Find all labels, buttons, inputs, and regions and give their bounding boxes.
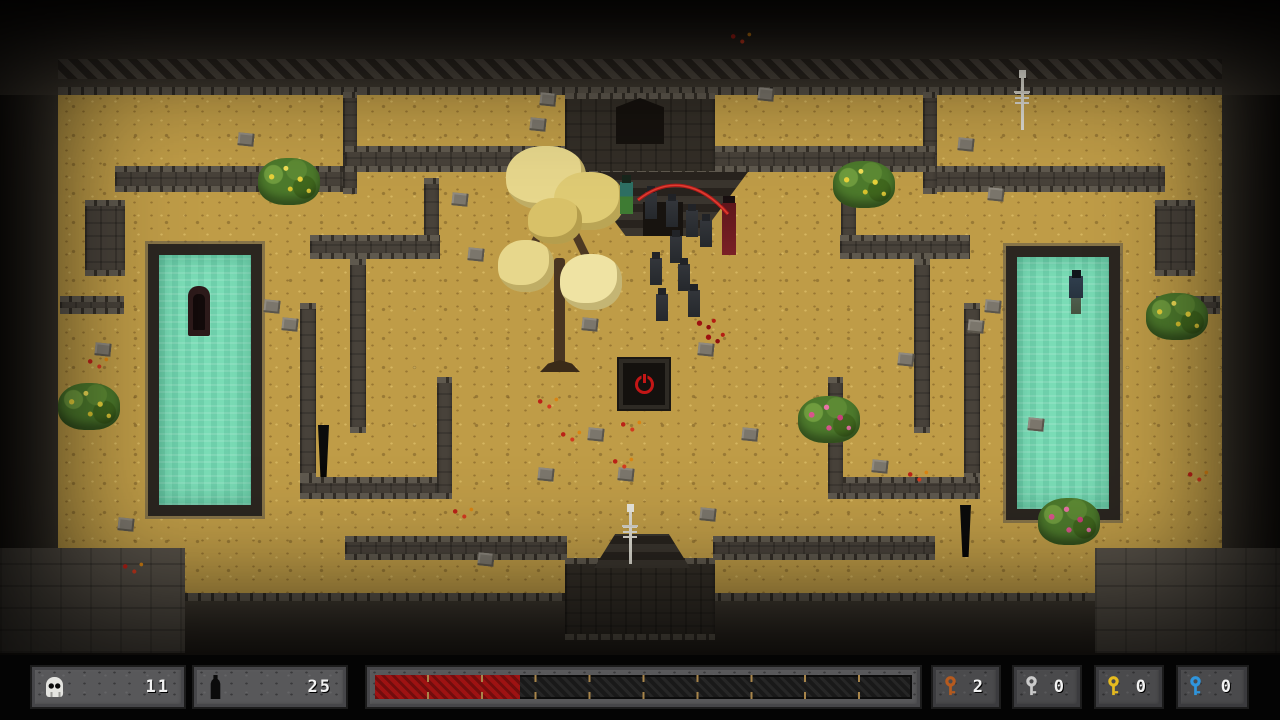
copper-key-count: 2 — [973, 677, 985, 697]
bush — [1038, 498, 1100, 545]
wall-segment — [300, 477, 446, 499]
stone-debris — [699, 507, 716, 522]
scattered-flowers — [85, 355, 111, 371]
bush — [1146, 293, 1208, 340]
key-counter-gold: 0 — [1094, 665, 1164, 709]
scattered-flowers — [558, 428, 584, 444]
stone-debris — [581, 317, 598, 332]
game-viewport[interactable] — [0, 0, 1280, 655]
wall-segment — [343, 92, 357, 194]
zombie — [700, 220, 712, 247]
stone-debris — [529, 117, 546, 132]
wall-segment — [300, 303, 316, 479]
wall-segment — [933, 166, 1165, 192]
outer-wall-right — [1222, 60, 1280, 620]
key-counter-copper: 2 — [931, 665, 1001, 709]
scattered-flowers — [728, 30, 754, 46]
copper-key-icon — [943, 676, 958, 698]
zombie — [688, 290, 700, 317]
scattered-flowers — [610, 455, 636, 471]
stone-debris — [467, 247, 484, 262]
stone-debris — [897, 352, 914, 367]
zombie — [650, 258, 662, 285]
bush — [798, 396, 860, 443]
stone-debris — [967, 319, 984, 334]
wall-segment — [1155, 200, 1195, 276]
stone-debris — [237, 132, 254, 147]
scattered-flowers — [618, 418, 644, 434]
bottle-icon — [208, 675, 223, 699]
stone-debris — [537, 467, 554, 482]
wall-segment — [923, 92, 937, 194]
stone-debris — [871, 459, 888, 474]
zombie — [678, 264, 690, 291]
bush — [58, 383, 120, 430]
stone-debris — [117, 517, 134, 532]
stone-debris — [1027, 417, 1044, 432]
key-counter-silver: 0 — [1012, 665, 1082, 709]
silver-key-count: 0 — [1054, 677, 1066, 697]
bush — [833, 161, 895, 208]
game-screen: 11 25 2 0 — [0, 0, 1280, 720]
green-hero — [620, 182, 633, 214]
skeleton — [1014, 78, 1030, 130]
stone-debris — [539, 92, 556, 107]
blue-key-icon — [1188, 676, 1203, 698]
health-segment-ticks — [375, 675, 912, 682]
stone-debris — [757, 87, 774, 102]
wall-segment — [85, 200, 125, 276]
water-pool — [1006, 246, 1120, 520]
corner-stonework-left — [0, 548, 185, 653]
stone-debris — [281, 317, 298, 332]
stone-debris — [741, 427, 758, 442]
skeleton — [622, 512, 638, 564]
outer-wall-left — [0, 60, 58, 620]
stone-debris — [451, 192, 468, 207]
hud-bar: 11 25 2 0 — [0, 655, 1280, 720]
wall-segment — [437, 377, 452, 499]
wall-segment — [713, 146, 935, 172]
scattered-flowers — [1185, 468, 1211, 484]
gold-key-icon — [1106, 676, 1121, 698]
cultist — [722, 203, 736, 255]
blood — [702, 330, 728, 346]
wall-segment — [310, 235, 440, 259]
zombie — [686, 210, 698, 237]
health-segment-ticks — [375, 692, 912, 699]
zombie — [666, 200, 678, 227]
wall-segment — [713, 536, 935, 560]
potion-count: 25 — [308, 677, 332, 697]
stone-debris — [477, 552, 494, 567]
stone-debris — [984, 299, 1001, 314]
stone-debris — [587, 427, 604, 442]
stone-debris — [263, 299, 280, 314]
power-icon — [635, 375, 654, 394]
north-gate-icon — [616, 98, 664, 144]
potion-counter: 25 — [192, 665, 348, 709]
gold-key-count: 0 — [1136, 677, 1148, 697]
drowned — [1066, 270, 1086, 316]
skull-counter: 11 — [30, 665, 186, 709]
scattered-flowers — [450, 505, 476, 521]
wall-segment — [565, 558, 715, 640]
scattered-flowers — [905, 468, 931, 484]
key-counter-blue: 0 — [1176, 665, 1249, 709]
zombie — [656, 294, 668, 321]
silver-key-icon — [1024, 676, 1039, 698]
scattered-flowers — [535, 395, 561, 411]
wall-segment — [914, 259, 930, 433]
sarcophagus — [188, 286, 210, 336]
corner-stonework-right — [1095, 548, 1280, 653]
wall-segment — [840, 235, 970, 259]
stone-debris — [987, 187, 1004, 202]
scattered-flowers — [120, 560, 146, 576]
frieze-pattern — [58, 59, 1222, 79]
wall-segment — [60, 296, 124, 314]
bush — [258, 158, 320, 205]
outer-wall-top — [0, 0, 1280, 95]
health-bar — [365, 665, 922, 709]
blue-key-count: 0 — [1221, 677, 1233, 697]
skull-count: 11 — [146, 677, 170, 697]
wall-segment — [424, 178, 439, 242]
pale-tree — [498, 146, 630, 384]
zombie — [645, 192, 657, 219]
skull-icon — [46, 677, 63, 697]
wall-segment — [345, 536, 567, 560]
health-track — [375, 675, 912, 699]
water-pool — [148, 244, 262, 516]
wall-segment — [350, 259, 366, 433]
stone-debris — [957, 137, 974, 152]
